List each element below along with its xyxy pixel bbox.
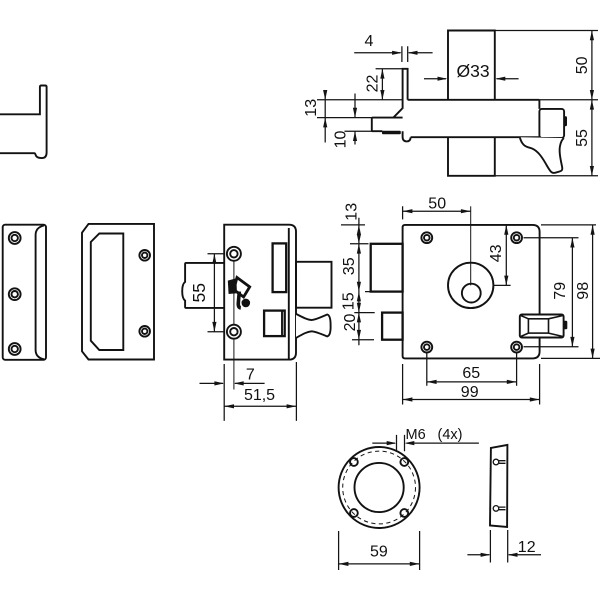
- svg-text:50: 50: [428, 195, 446, 212]
- svg-text:99: 99: [461, 384, 479, 401]
- svg-text:13: 13: [344, 203, 361, 221]
- svg-text:65: 65: [462, 365, 480, 382]
- svg-text:55: 55: [574, 129, 591, 147]
- svg-text:20: 20: [342, 314, 359, 332]
- svg-text:55: 55: [189, 283, 209, 302]
- svg-text:98: 98: [575, 282, 592, 300]
- svg-text:M6: M6: [406, 427, 426, 443]
- svg-text:13: 13: [303, 99, 320, 117]
- svg-text:43: 43: [488, 244, 505, 262]
- svg-text:59: 59: [370, 544, 388, 561]
- svg-text:7: 7: [246, 366, 255, 383]
- svg-text:22: 22: [364, 75, 381, 93]
- svg-text:15: 15: [341, 292, 358, 310]
- svg-text:51,5: 51,5: [244, 387, 275, 404]
- svg-text:50: 50: [574, 56, 591, 74]
- svg-text:79: 79: [552, 282, 569, 300]
- svg-text:Ø33: Ø33: [456, 61, 489, 81]
- svg-text:35: 35: [341, 257, 358, 275]
- svg-text:(4x): (4x): [438, 427, 463, 443]
- svg-text:4: 4: [365, 33, 374, 50]
- svg-text:10: 10: [333, 131, 350, 149]
- svg-text:12: 12: [518, 539, 536, 556]
